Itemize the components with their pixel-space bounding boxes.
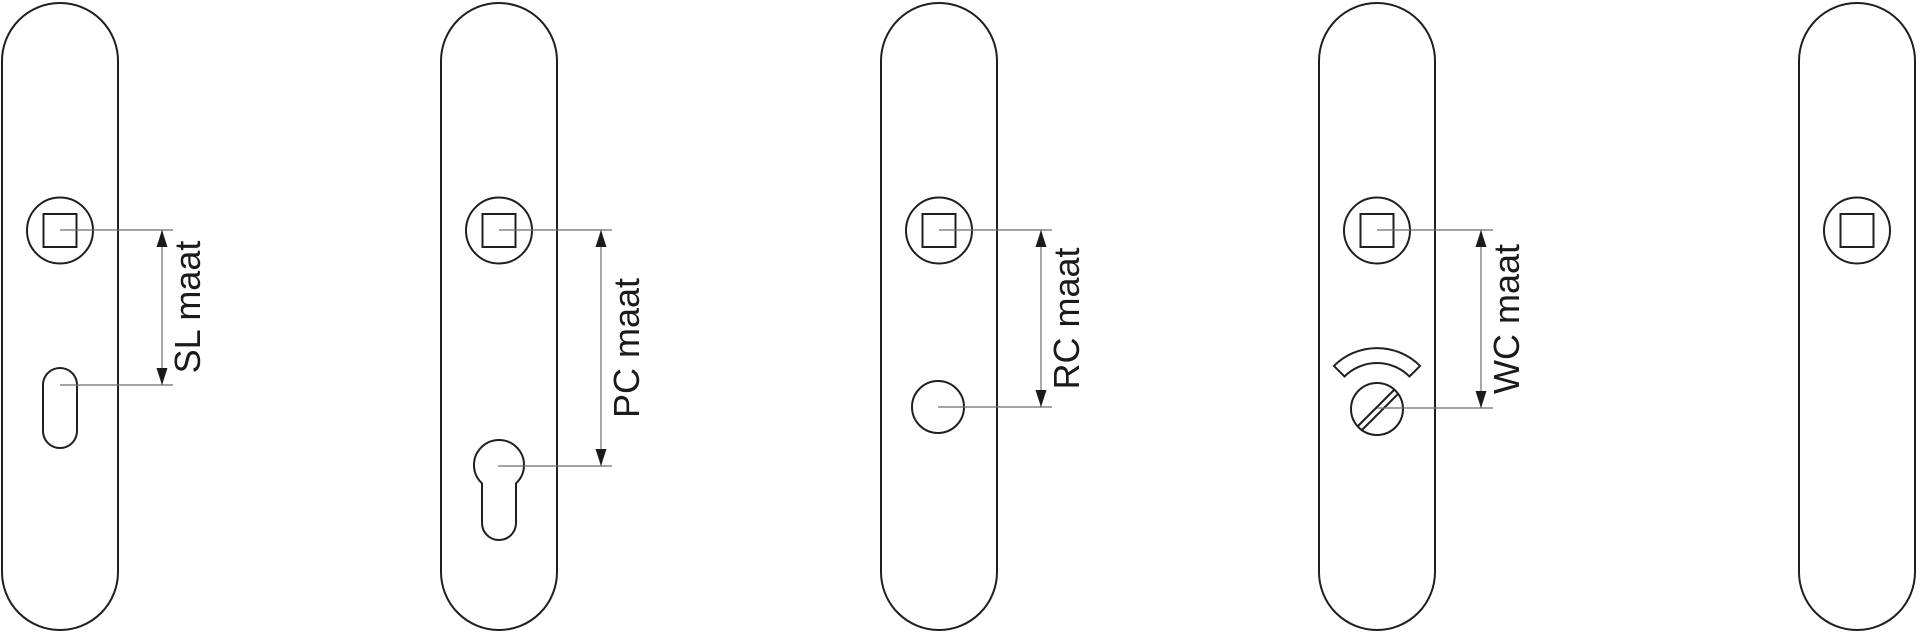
- arrowhead-down-icon: [1476, 391, 1487, 408]
- plate-outline: [1319, 3, 1435, 630]
- arrowhead-down-icon: [1036, 390, 1047, 407]
- arrowhead-down-icon: [157, 368, 168, 385]
- plate-blind: [1799, 3, 1915, 630]
- plate-sl: SL maat: [2, 3, 208, 630]
- plate-wc: WC maat: [1319, 3, 1527, 630]
- arrowhead-down-icon: [596, 449, 607, 466]
- plate-pc: PC maat: [441, 3, 647, 630]
- key-slot-hole: [43, 368, 77, 448]
- wc-thumbturn-hole: [1351, 383, 1403, 435]
- plate-rc: RC maat: [881, 3, 1087, 630]
- plate-outline: [2, 3, 118, 630]
- dimension-label-sl: SL maat: [167, 241, 208, 374]
- plate-outline: [881, 3, 997, 630]
- arrowhead-up-icon: [596, 230, 607, 247]
- diagram-canvas: SL maat PC maat RC maat: [0, 0, 1920, 632]
- plate-outline: [1799, 3, 1915, 630]
- euro-cylinder-hole: [474, 440, 524, 540]
- arrowhead-up-icon: [1036, 230, 1047, 247]
- spindle-square-hole: [1841, 214, 1874, 247]
- dimension-label-pc: PC maat: [606, 278, 647, 418]
- dimension-label-wc: WC maat: [1486, 244, 1527, 394]
- arrowhead-up-icon: [157, 230, 168, 247]
- dimension-label-rc: RC maat: [1046, 247, 1087, 389]
- backplates-drawing: SL maat PC maat RC maat: [0, 0, 1920, 632]
- arrowhead-up-icon: [1476, 230, 1487, 247]
